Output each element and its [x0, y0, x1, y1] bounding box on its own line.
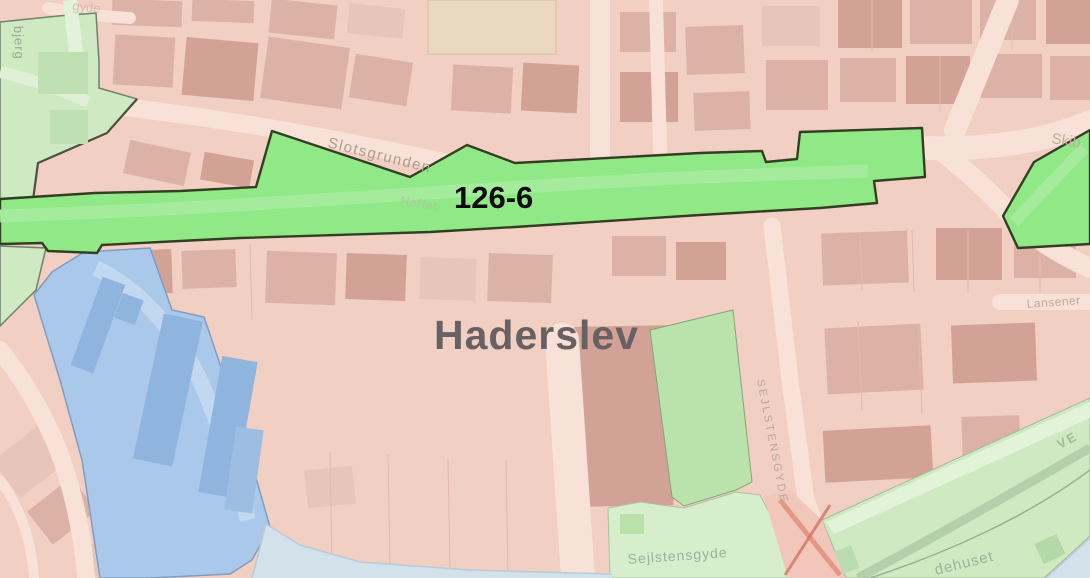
green-building — [38, 52, 88, 94]
plan-area-label: 126-6 — [454, 180, 533, 215]
map-viewport[interactable]: Slotsgrunden Naffet 126-6 Haderslev SEJL… — [0, 0, 1090, 578]
green-building — [620, 514, 644, 534]
map-canvas[interactable]: Slotsgrunden Naffet 126-6 Haderslev SEJL… — [0, 0, 1090, 578]
place-label-haderslev: Haderslev — [434, 312, 639, 358]
street-label-bjerg: bjerg — [11, 26, 27, 60]
green-building — [50, 110, 88, 144]
